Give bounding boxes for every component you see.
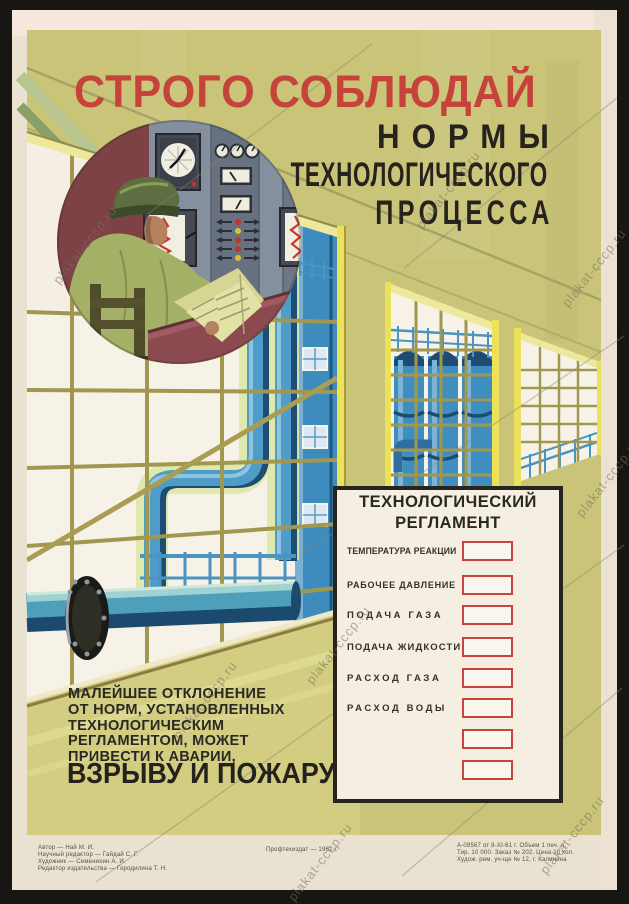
value-box-empty (462, 760, 513, 780)
board-row-label: РАСХОД ГАЗА (347, 673, 441, 684)
poster-subtitle: НОРМЫ ТЕХНОЛОГИЧЕСКОГО ПРОЦЕССА (158, 118, 548, 232)
value-box (462, 541, 513, 561)
poster-page: { "title": { "main": "СТРОГО СОБЛЮДАЙ", … (0, 0, 629, 900)
warning-line: ОТ НОРМ, УСТАНОВЛЕННЫХ (68, 702, 285, 718)
imprint-line: Научный редактор — Гайдай С. Г. (38, 852, 167, 859)
regulation-board-title: ТЕХНОЛОГИЧЕСКИЙ РЕГЛАМЕНТ (337, 492, 559, 534)
subtitle-line-2: ТЕХНОЛОГИЧЕСКОГО (291, 156, 548, 194)
value-box (462, 637, 513, 657)
storage-tanks (394, 351, 492, 487)
imprint-line: Автор — Най М. И. (38, 845, 167, 852)
value-box (462, 575, 513, 595)
board-row-label: ПОДАЧА ЖИДКОСТИ (347, 642, 461, 653)
value-box-empty (462, 729, 513, 749)
board-row-label: РАБОЧЕЕ ДАВЛЕНИЕ (347, 580, 456, 591)
board-title-line-1: ТЕХНОЛОГИЧЕСКИЙ (337, 492, 559, 513)
warning-line: МАЛЕЙШЕЕ ОТКЛОНЕНИЕ (68, 686, 285, 702)
board-row-label: РАСХОД ВОДЫ (347, 703, 447, 714)
poster-title: СТРОГО СОБЛЮДАЙ (74, 66, 537, 118)
board-row-label: ТЕМПЕРАТУРА РЕАКЦИИ (347, 546, 456, 557)
subtitle-line-3: ПРОЦЕССА (261, 194, 554, 232)
board-title-line-2: РЕГЛАМЕНТ (337, 513, 559, 534)
value-box (462, 698, 513, 718)
imprint-line: Художник — Семенихин А. И. (38, 859, 167, 866)
imprint-line: Редактор издательства — Городилина Т. Н. (38, 866, 167, 873)
value-box (462, 668, 513, 688)
value-box (462, 605, 513, 625)
pipe-flange (65, 576, 109, 660)
warning-emphasis: ВЗРЫВУ И ПОЖАРУ (67, 758, 335, 791)
imprint-left: Автор — Най М. И. Научный редактор — Гай… (38, 845, 167, 873)
subtitle-line-1: НОРМЫ (190, 118, 561, 156)
